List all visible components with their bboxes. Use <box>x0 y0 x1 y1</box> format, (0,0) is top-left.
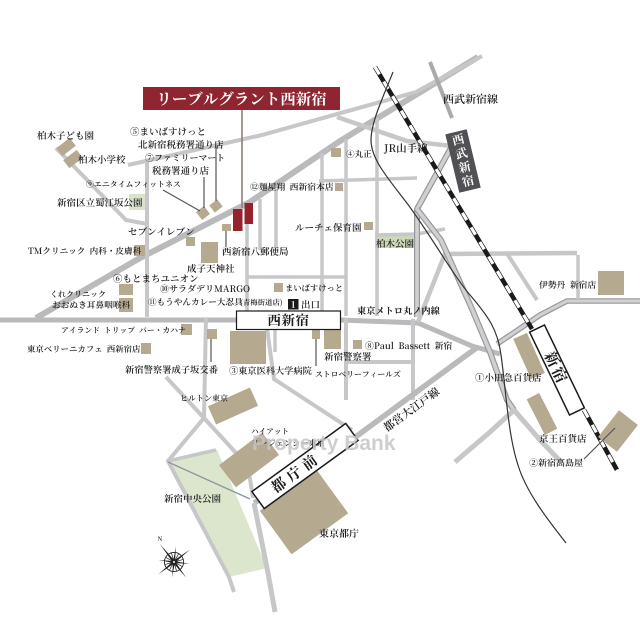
svg-text:Property Bank: Property Bank <box>252 432 396 455</box>
